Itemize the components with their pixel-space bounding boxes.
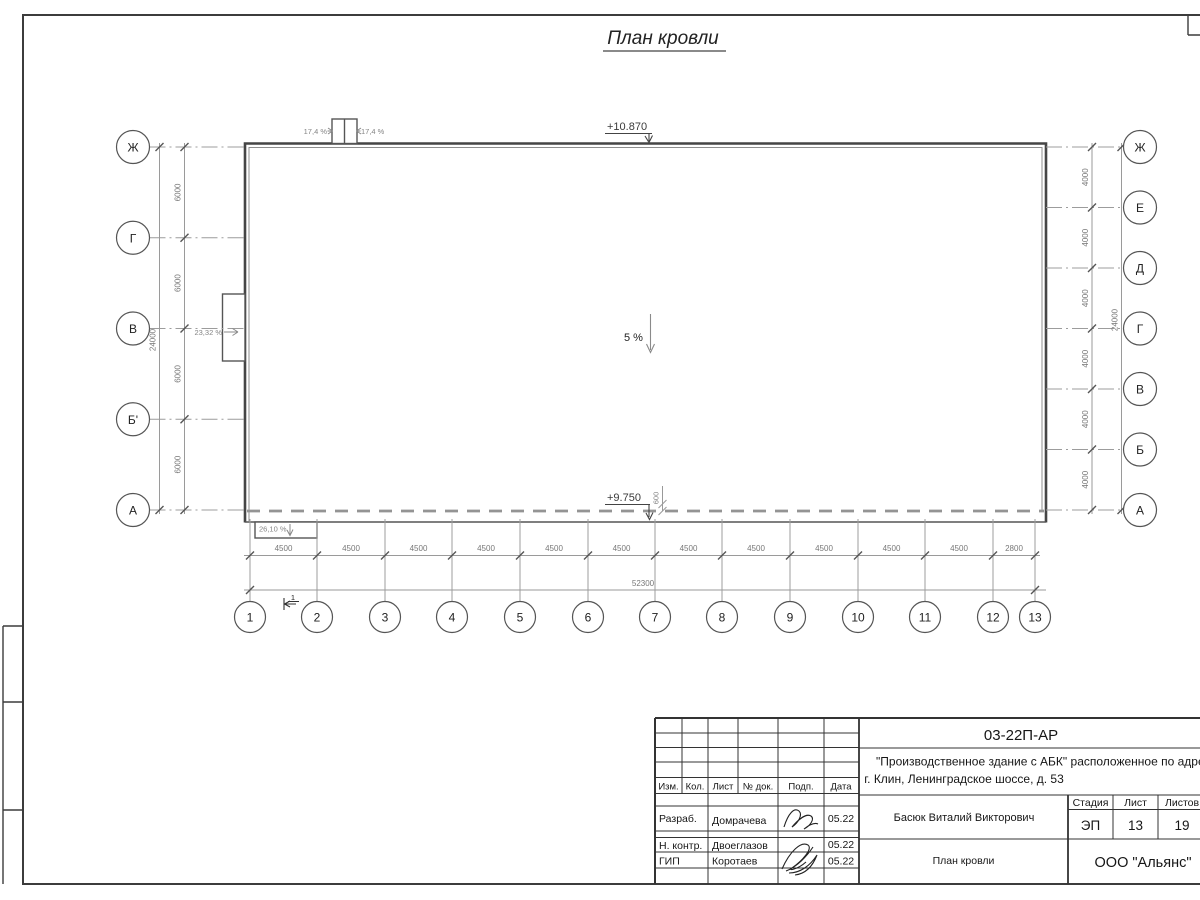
row-date: 05.22 xyxy=(828,813,854,825)
row-name: Коротаев xyxy=(712,856,758,868)
signature-scribble xyxy=(784,810,818,829)
dim-label: 4500 xyxy=(950,544,968,553)
axis-label: 5 xyxy=(517,611,524,625)
title-block: Изм. Кол. Лист № док. Подп. Дата Разраб.… xyxy=(655,718,1200,884)
stage-sheet-section: Стадия Лист Листов ЭП 13 19 xyxy=(1073,797,1200,833)
left-canopy xyxy=(223,294,246,361)
signature-rows: Разраб. Домрачева 05.22 Н. контр. Двоегл… xyxy=(659,813,854,868)
sheets-label: Листов xyxy=(1165,797,1200,809)
axis-label: А xyxy=(1136,504,1144,518)
dim-label: 6000 xyxy=(174,364,183,382)
axis-label: Б xyxy=(1136,443,1144,457)
row-name: Домрачева xyxy=(712,815,767,827)
dim-label: 4500 xyxy=(883,544,901,553)
section-mark: 1 xyxy=(284,593,299,610)
col-header: Подп. xyxy=(788,782,813,793)
axis-label: 13 xyxy=(1028,611,1042,625)
dim-label: 4000 xyxy=(1081,410,1090,428)
sheet-title: План кровли xyxy=(933,855,995,867)
axis-label: А xyxy=(129,504,137,518)
project-name-line1: "Производственное здание с АБК" располож… xyxy=(876,755,1200,769)
revision-header: Изм. Кол. Лист № док. Подп. Дата xyxy=(658,782,852,793)
col-header: № док. xyxy=(743,782,773,793)
stage-label: Стадия xyxy=(1073,797,1109,809)
roof-plan-drawing: План кровли 6000 6000 600 xyxy=(0,0,1200,900)
axis-label: 10 xyxy=(851,611,865,625)
company-name: ООО "Альянс" xyxy=(1095,855,1192,871)
doc-number: 03-22П-АР xyxy=(984,727,1058,744)
row-role: Разраб. xyxy=(659,813,697,825)
slope-label: 17,4 % xyxy=(361,127,385,136)
axis-label: 4 xyxy=(449,611,456,625)
dim-total-label: 24000 xyxy=(149,328,158,351)
stage-value: ЭП xyxy=(1081,818,1100,833)
axis-label: Г xyxy=(130,231,137,245)
page-title: План кровли xyxy=(607,28,719,49)
dim-label: 4500 xyxy=(815,544,833,553)
col-header: Лист xyxy=(713,782,734,793)
axis-label: 11 xyxy=(919,611,932,625)
axis-label: Ж xyxy=(127,141,138,155)
slope-label: 23,32 % xyxy=(194,328,222,337)
signatures xyxy=(782,810,818,875)
project-name-line2: г. Клин, Ленинградское шоссе, д. 53 xyxy=(864,772,1064,786)
elevation-label: +9.750 xyxy=(607,492,641,504)
col-header: Дата xyxy=(830,782,852,793)
slope-label: 5 % xyxy=(624,332,643,344)
dim-label: 4500 xyxy=(275,544,293,553)
row-role: Н. контр. xyxy=(659,840,702,852)
row-date: 05.22 xyxy=(828,839,854,851)
axis-label: 8 xyxy=(719,611,726,625)
dim-labels-bottom: 4500 4500 4500 4500 4500 4500 4500 4500 … xyxy=(275,544,1024,588)
dim-label: 4500 xyxy=(477,544,495,553)
section-mark-label: 1 xyxy=(291,593,295,602)
axis-label: В xyxy=(129,322,137,336)
row-name: Двоеглазов xyxy=(712,840,768,852)
axis-label: 6 xyxy=(585,611,592,625)
dim-label: 4000 xyxy=(1081,349,1090,367)
row-date: 05.22 xyxy=(828,856,854,868)
elevation-mark-top: +10.870 xyxy=(605,121,653,143)
elevation-label: +10.870 xyxy=(607,121,647,133)
axis-label: 3 xyxy=(382,611,389,625)
dim-label: 6000 xyxy=(174,455,183,473)
axis-label: 7 xyxy=(652,611,659,625)
dim-label: 4500 xyxy=(680,544,698,553)
dim-label: 2800 xyxy=(1005,544,1023,553)
slope-label: 17,4 % xyxy=(304,127,328,136)
dim-label: 4500 xyxy=(747,544,765,553)
approver-name: Басюк Виталий Викторович xyxy=(894,812,1035,824)
sheet-value: 13 xyxy=(1128,818,1143,833)
dim-label: 4000 xyxy=(1081,470,1090,488)
axis-label: Д xyxy=(1136,262,1144,276)
sheet-label: Лист xyxy=(1124,797,1147,809)
roof-outline xyxy=(245,144,1046,523)
axis-label: В xyxy=(1136,383,1144,397)
axis-label: Б' xyxy=(128,413,138,427)
slope-label: 26,10 % xyxy=(259,525,287,534)
col-header: Изм. xyxy=(658,782,678,793)
signature-scribble xyxy=(782,844,817,875)
dim-label: 6000 xyxy=(174,183,183,201)
drawing-page: План кровли 6000 6000 600 xyxy=(0,0,1200,900)
axis-label: 9 xyxy=(787,611,794,625)
axis-label: Ж xyxy=(1134,141,1145,155)
dim-total-label: 24000 xyxy=(1111,308,1120,331)
dim-total-label: 52300 xyxy=(632,579,655,588)
dim-label: 4000 xyxy=(1081,168,1090,186)
dim-label: 4500 xyxy=(613,544,631,553)
dim-label: 6000 xyxy=(174,274,183,292)
axis-label: 1 xyxy=(247,611,254,625)
axis-label: 2 xyxy=(314,611,321,625)
dim-label: 4000 xyxy=(1081,228,1090,246)
dim-label: 4500 xyxy=(410,544,428,553)
axis-label: Г xyxy=(1137,322,1144,336)
dim-label: 4500 xyxy=(545,544,563,553)
dim-label: 4000 xyxy=(1081,289,1090,307)
eaves-offset-label: 600 xyxy=(652,492,661,505)
axis-label: Е xyxy=(1136,201,1144,215)
row-role: ГИП xyxy=(659,856,680,868)
drawing-title-block: План кровли xyxy=(603,28,726,51)
axis-label: 12 xyxy=(986,611,1000,625)
col-header: Кол. xyxy=(686,782,705,793)
sheets-value: 19 xyxy=(1174,818,1189,833)
dim-label: 4500 xyxy=(342,544,360,553)
